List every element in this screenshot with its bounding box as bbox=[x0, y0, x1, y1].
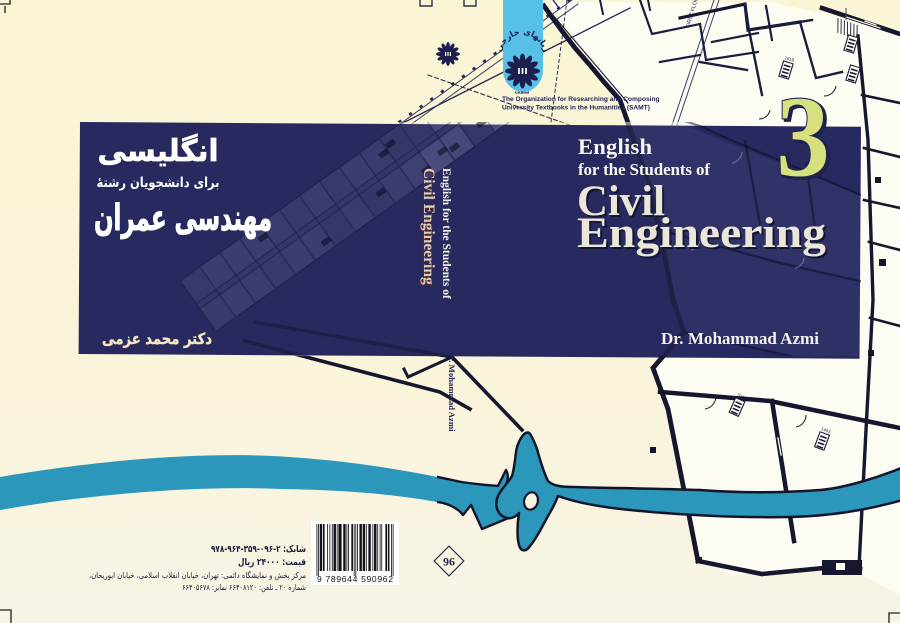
svg-text:قیمت: ۲۴۰۰۰ ریال: قیمت: ۲۴۰۰۰ ریال bbox=[238, 557, 306, 568]
svg-text:انگلیسی: انگلیسی bbox=[98, 133, 219, 169]
svg-text:English for the Students of: English for the Students of bbox=[440, 168, 452, 299]
svg-text:The Organization for Researchi: The Organization for Researching and Com… bbox=[502, 96, 660, 103]
svg-text:مهندسی عمران: مهندسی عمران bbox=[94, 198, 272, 239]
svg-text:English: English bbox=[578, 134, 652, 159]
svg-text:Engineering: Engineering bbox=[577, 210, 827, 257]
svg-text:شماره ۲۰ ـ تلفن: ۶۶۴۰۸۱۲۰ نم: شماره ۲۰ ـ تلفن: ۶۶۴۰۸۱۲۰ نمابر: ۶۶۴۰۵۶۷… bbox=[182, 583, 306, 592]
svg-text:سمت: سمت bbox=[515, 90, 530, 96]
svg-text:Civil Engineering: Civil Engineering bbox=[420, 168, 437, 285]
svg-text:96: 96 bbox=[443, 555, 455, 569]
svg-text:مرکز پخش و نمایشگاه دائمی: تهر: مرکز پخش و نمایشگاه دائمی: تهران، خیابان… bbox=[89, 570, 306, 580]
svg-text:Dr. Mohammad Azmi: Dr. Mohammad Azmi bbox=[661, 329, 819, 348]
svg-text:دکتر محمد عزمی: دکتر محمد عزمی bbox=[102, 330, 212, 348]
svg-text:for the Students of: for the Students of bbox=[578, 160, 710, 179]
svg-text:شابک: ۲-۰۹۶-۳۵۹-۹۶۴-۹۷۸: شابک: ۲-۰۹۶-۳۵۹-۹۶۴-۹۷۸ bbox=[211, 544, 306, 555]
svg-text:3: 3 bbox=[776, 74, 829, 202]
svg-text:Dr. Mohammad Azmi: Dr. Mohammad Azmi bbox=[447, 351, 457, 432]
svg-text:9 789644 590962: 9 789644 590962 bbox=[317, 574, 393, 584]
svg-text:برای دانشجویان رشتهٔ: برای دانشجویان رشتهٔ bbox=[97, 175, 220, 191]
svg-text:University Textbooks in the Hu: University Textbooks in the Humanities (… bbox=[502, 105, 650, 112]
